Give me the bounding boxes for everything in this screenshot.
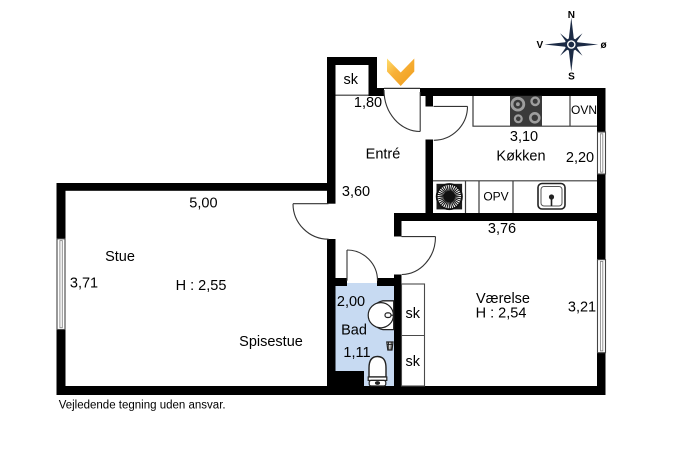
svg-text:OVN: OVN	[571, 103, 597, 117]
svg-text:H : 2,54: H : 2,54	[476, 306, 527, 322]
svg-text:H : 2,55: H : 2,55	[176, 278, 227, 294]
svg-text:Bad: Bad	[341, 323, 367, 339]
svg-text:1,80: 1,80	[354, 95, 382, 111]
svg-text:3,76: 3,76	[488, 221, 516, 237]
svg-text:sk: sk	[406, 306, 421, 322]
svg-text:V: V	[536, 40, 543, 51]
svg-text:3,71: 3,71	[70, 276, 98, 292]
svg-text:N: N	[568, 10, 575, 21]
svg-text:sk: sk	[406, 354, 421, 370]
svg-text:3,10: 3,10	[510, 129, 538, 145]
svg-text:Entré: Entré	[366, 147, 401, 163]
svg-text:ø: ø	[600, 40, 607, 51]
svg-text:3,21: 3,21	[568, 300, 596, 316]
svg-text:Køkken: Køkken	[496, 148, 545, 164]
svg-text:S: S	[568, 72, 575, 83]
svg-text:2,00: 2,00	[337, 294, 365, 310]
svg-text:Stue: Stue	[105, 249, 135, 265]
svg-text:Vejledende tegning uden ansvar: Vejledende tegning uden ansvar.	[59, 400, 226, 412]
svg-text:sk: sk	[344, 72, 359, 88]
svg-text:3,60: 3,60	[342, 184, 370, 200]
svg-text:1,11: 1,11	[343, 345, 370, 361]
svg-text:Spisestue: Spisestue	[239, 334, 303, 350]
svg-text:5,00: 5,00	[189, 195, 217, 211]
svg-text:2,20: 2,20	[566, 150, 594, 166]
svg-text:OPV: OPV	[483, 190, 508, 204]
